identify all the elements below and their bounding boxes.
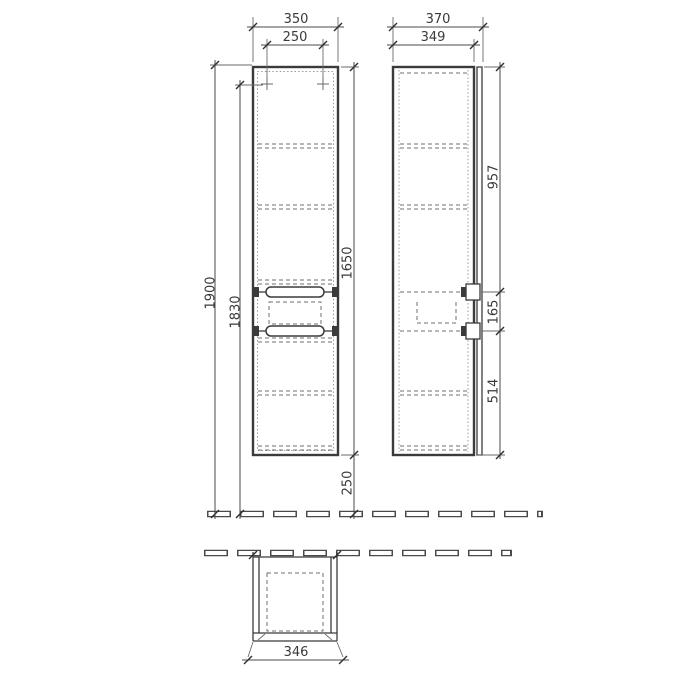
technical-drawing-canvas: 350 250 370 349 1900 1830 <box>0 0 700 700</box>
dim-handle-spacing: 165 <box>487 300 502 325</box>
dim-top-to-handle: 957 <box>487 165 502 190</box>
dim-cabinet-height: 1650 <box>341 246 356 279</box>
dim-height-mounting: 1830 <box>229 295 244 328</box>
side-handle-top <box>466 284 480 300</box>
plan-hidden-body <box>267 573 323 631</box>
dim-height-overall: 1900 <box>204 276 219 309</box>
dim-front-width-total: 350 <box>284 12 309 27</box>
side-carcass <box>393 67 474 455</box>
side-door-front <box>477 67 482 455</box>
side-view <box>393 67 482 455</box>
front-handle-bottom <box>266 326 324 336</box>
handle-mount-block <box>461 326 466 336</box>
handle-mount-block <box>461 287 466 297</box>
front-view <box>253 67 338 455</box>
dim-side-depth-total: 370 <box>426 12 451 27</box>
dim-handle-to-bottom: 514 <box>487 379 502 404</box>
cabinet-technical-drawing: 350 250 370 349 1900 1830 <box>0 0 700 700</box>
dim-side-depth-body: 349 <box>421 30 446 45</box>
front-carcass <box>253 67 338 455</box>
dim-plan-width: 346 <box>284 645 309 660</box>
dim-front-width-mounting: 250 <box>283 30 308 45</box>
front-handle-top <box>266 287 324 297</box>
plan-view <box>249 551 341 641</box>
side-handle-bottom <box>466 323 480 339</box>
dim-floor-clearance: 250 <box>341 471 356 496</box>
